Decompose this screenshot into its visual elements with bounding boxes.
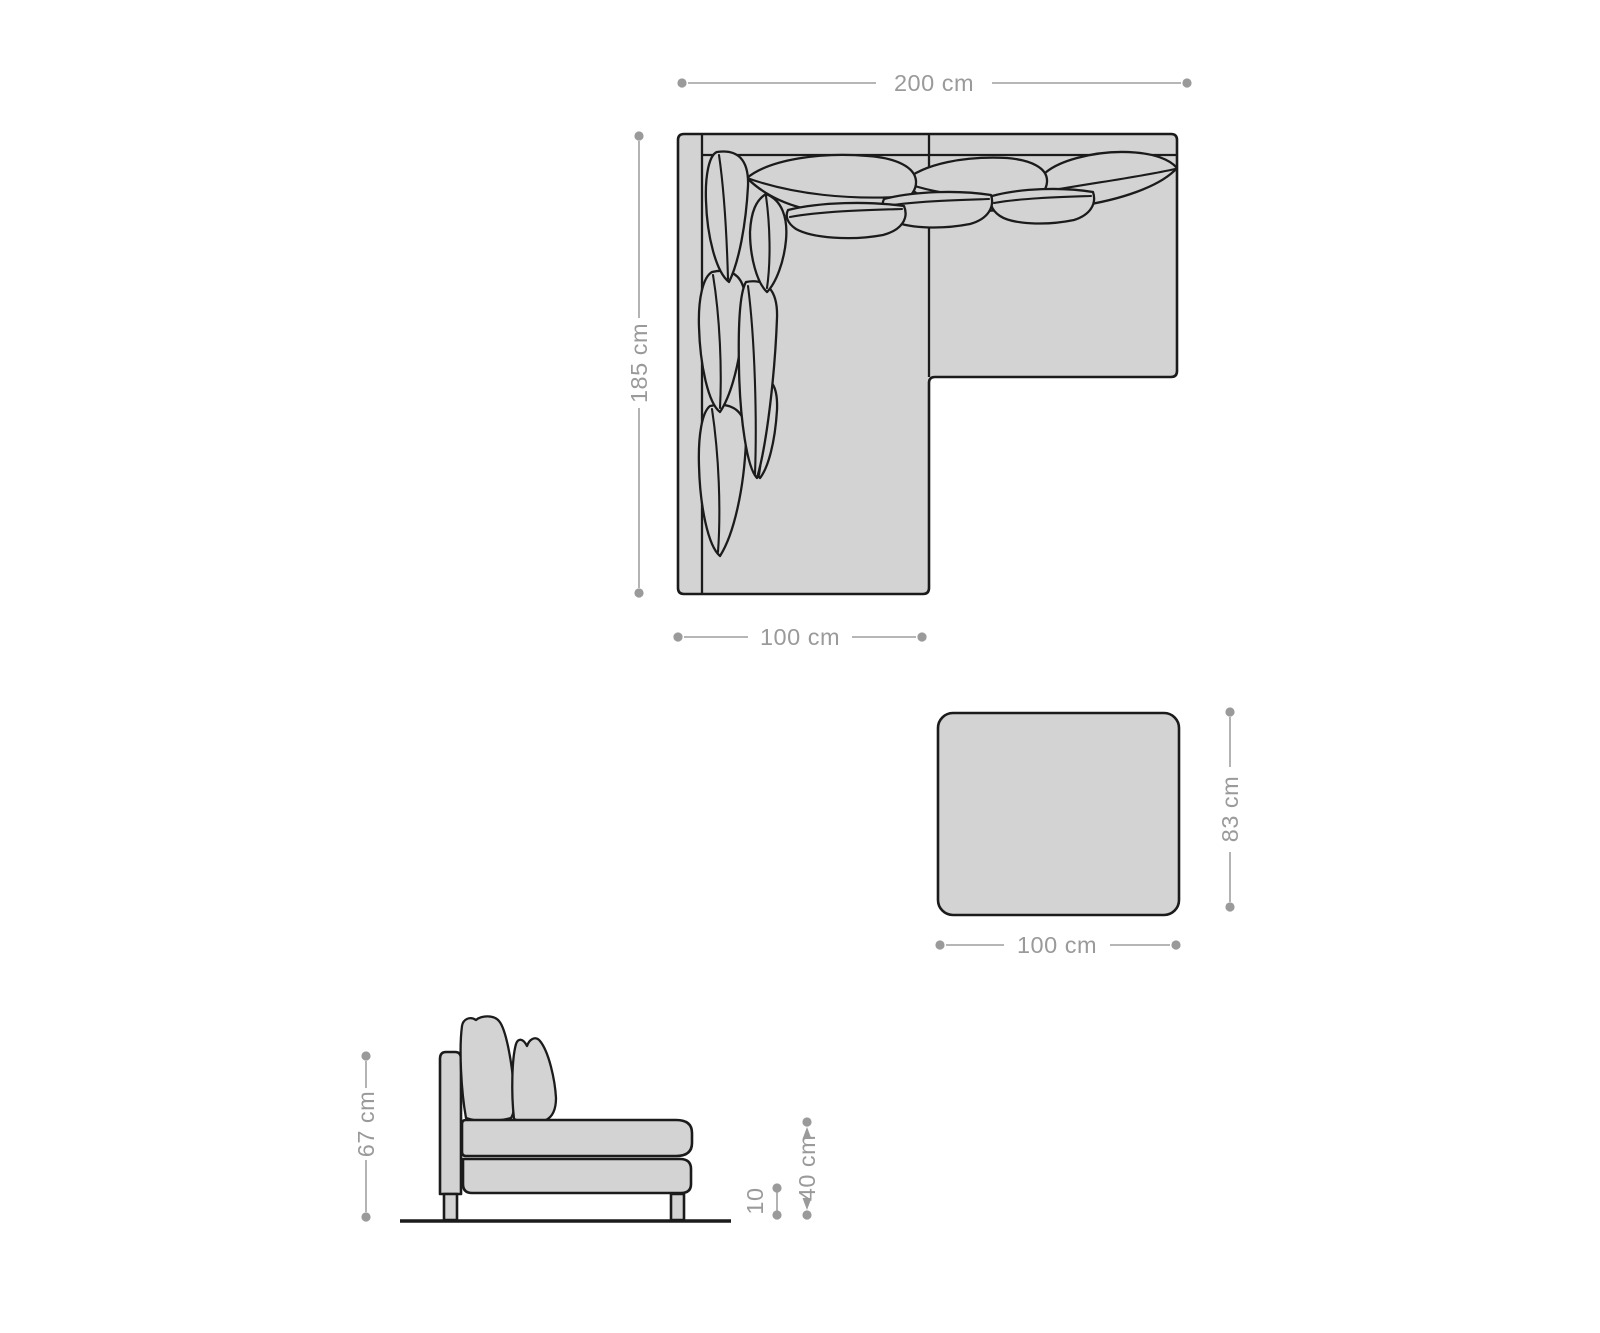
ottoman-width-label: 100 cm xyxy=(1017,932,1097,958)
dim-dot xyxy=(1225,707,1234,716)
sofa-width-label: 200 cm xyxy=(894,70,974,96)
dim-dot xyxy=(1171,940,1180,949)
side-front-pillow xyxy=(512,1038,556,1122)
side-back-pillow xyxy=(461,1016,515,1121)
seat-height-label: 40 cm xyxy=(794,1135,820,1202)
dim-dot xyxy=(917,632,926,641)
dim-dot xyxy=(361,1051,370,1060)
ottoman-depth-label: 83 cm xyxy=(1217,776,1243,843)
side-backrest xyxy=(440,1052,461,1194)
back-cushion-small-3 xyxy=(991,189,1094,224)
dim-dot xyxy=(634,588,643,597)
side-height-dimension: 67 cm xyxy=(353,1051,379,1221)
side-seat-cushion xyxy=(462,1120,692,1156)
sofa-width-dimension: 200 cm xyxy=(677,70,1191,96)
dim-dot xyxy=(677,78,686,87)
seat-height-dimension: 40 cm xyxy=(794,1117,820,1219)
leg-height-label: 10 xyxy=(742,1187,768,1214)
dim-dot xyxy=(634,131,643,140)
side-leg-left xyxy=(444,1194,457,1220)
leg-height-dimension: 10 xyxy=(742,1183,782,1219)
back-cushion-small-1 xyxy=(787,203,906,238)
ottoman-depth-dimension: 83 cm xyxy=(1217,707,1243,911)
dim-dot xyxy=(935,940,944,949)
dim-dot xyxy=(1225,902,1234,911)
dim-dot xyxy=(802,1210,811,1219)
ottoman-top-view xyxy=(938,713,1179,915)
dim-dot xyxy=(361,1212,370,1221)
side-height-label: 67 cm xyxy=(353,1091,379,1158)
side-base xyxy=(463,1159,691,1193)
ottoman-width-dimension: 100 cm xyxy=(935,932,1180,958)
sofa-section-width-dimension: 100 cm xyxy=(673,624,926,650)
dim-dot xyxy=(772,1210,781,1219)
dim-dot xyxy=(772,1183,781,1192)
sofa-side-view xyxy=(400,1016,731,1221)
dim-dot xyxy=(673,632,682,641)
sofa-top-view xyxy=(678,134,1177,594)
dim-dot xyxy=(802,1117,811,1126)
sofa-section-width-label: 100 cm xyxy=(760,624,840,650)
ottoman-body xyxy=(938,713,1179,915)
side-leg-right xyxy=(671,1194,684,1220)
sofa-depth-label: 185 cm xyxy=(626,323,652,403)
dim-dot xyxy=(1182,78,1191,87)
sofa-depth-dimension: 185 cm xyxy=(626,131,652,597)
furniture-dimension-diagram: 200 cm 185 cm 100 cm 83 cm 100 cm xyxy=(0,0,1600,1333)
